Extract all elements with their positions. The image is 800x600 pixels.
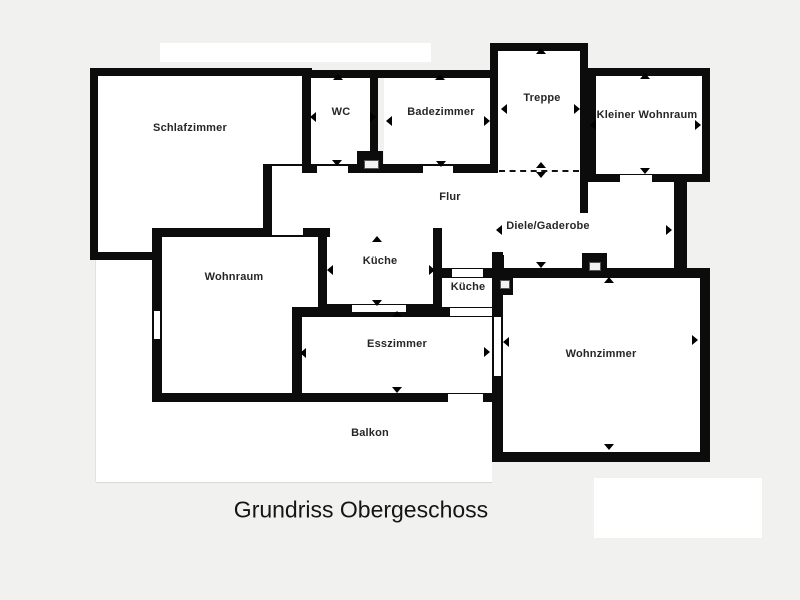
marker-diele-right	[666, 225, 672, 235]
marker-kleiner-wohnraum-up	[640, 73, 650, 79]
marker-wohnzimmer-up	[604, 277, 614, 283]
marker-treppe-up	[536, 48, 546, 54]
window-esszimmer-wohnzimmer	[493, 316, 502, 377]
marker-esszimmer-left	[300, 348, 306, 358]
marker-kueche-right	[429, 265, 435, 275]
room-label-treppe: Treppe	[523, 92, 560, 104]
room-label-kueche-gross: Küche	[363, 255, 398, 267]
room-label-kueche-klein: Küche	[451, 281, 486, 293]
floor-badezimmer	[384, 76, 492, 168]
marker-stair-line-up	[536, 162, 546, 168]
room-label-flur: Flur	[439, 191, 461, 203]
marker-treppe-left	[501, 104, 507, 114]
marker-kleiner-wohnraum-left	[590, 120, 596, 130]
marker-badezimmer-right	[484, 116, 490, 126]
door-opening-flur-schlafzimmer	[272, 166, 302, 173]
marker-badezimmer-up	[435, 74, 445, 80]
marker-wc-up	[333, 74, 343, 80]
wall-wohnraum-bottom	[152, 393, 308, 402]
wall-kueche-left	[318, 228, 327, 312]
window-wohnraum-left	[153, 310, 161, 340]
floor-plan-canvas: Schlafzimmer WC Badezimmer Treppe Kleine…	[0, 0, 800, 600]
wall-schlafzimmer-top	[90, 68, 312, 76]
marker-kueche-down	[372, 300, 382, 306]
marker-kueche-up	[372, 236, 382, 242]
opening-kueche-klein-esszimmer	[450, 308, 492, 316]
door-opening-flur-wc	[317, 166, 348, 173]
room-label-schlafzimmer: Schlafzimmer	[153, 122, 227, 134]
wall-wohnzimmer-bottom	[493, 452, 710, 462]
door-opening-flur-wohnraum	[272, 228, 303, 235]
window-kleiner-wohnraum-bottom	[620, 175, 652, 182]
whiteout-band-top	[160, 43, 431, 62]
plan-title: Grundriss Obergeschoss	[234, 497, 488, 524]
marker-kueche-left	[327, 265, 333, 275]
floor-kleiner-wohnraum	[594, 74, 704, 176]
wall-schlafzimmer-left	[90, 68, 98, 260]
marker-wc-down	[332, 160, 342, 166]
wall-wc-badezimmer-top	[302, 70, 498, 78]
room-label-kleiner-wohnraum: Kleiner Wohnraum	[597, 109, 698, 121]
room-label-diele: Diele/Gaderobe	[506, 220, 590, 232]
marker-wohnzimmer-left	[503, 337, 509, 347]
whiteout-rect-bottom-right	[594, 478, 762, 538]
wall-flur-left	[263, 164, 272, 230]
wall-diele-right	[674, 178, 687, 278]
marker-wohnzimmer-right	[692, 335, 698, 345]
window-kueche-klein-top	[452, 269, 483, 277]
wall-schlafzimmer-bottom	[90, 252, 158, 260]
marker-kleiner-wohnraum-down	[640, 168, 650, 174]
marker-kleiner-wohnraum-right	[695, 120, 701, 130]
marker-esszimmer-up	[392, 311, 402, 317]
door-symbol-wc-inner	[364, 160, 379, 169]
room-label-balkon: Balkon	[351, 427, 389, 439]
marker-esszimmer-right	[484, 347, 490, 357]
floor-wohnzimmer	[503, 277, 700, 452]
window-esszimmer-bottom	[448, 394, 483, 402]
room-label-badezimmer: Badezimmer	[407, 106, 474, 118]
door-symbol-wohnzimmer-inner	[500, 280, 510, 289]
room-label-wc: WC	[332, 106, 351, 118]
room-label-wohnraum: Wohnraum	[205, 271, 264, 283]
marker-diele-down	[536, 262, 546, 268]
room-label-wohnzimmer: Wohnzimmer	[566, 348, 637, 360]
marker-stair-line-down	[536, 172, 546, 178]
wall-treppe-left	[490, 43, 498, 171]
wall-wohnzimmer-right	[700, 268, 710, 462]
wall-wohnraum-top	[152, 228, 330, 237]
door-symbol-diele-inner	[589, 262, 601, 271]
marker-esszimmer-down	[392, 387, 402, 393]
wall-kleiner-wohnraum-right	[702, 68, 710, 182]
door-opening-flur-badezimmer	[423, 166, 453, 173]
room-label-esszimmer: Esszimmer	[367, 338, 427, 350]
marker-wc-left	[310, 112, 316, 122]
marker-badezimmer-down	[436, 161, 446, 167]
marker-wc-right	[370, 112, 376, 122]
marker-treppe-right	[574, 104, 580, 114]
marker-wohnzimmer-down	[604, 444, 614, 450]
marker-diele-left	[496, 225, 502, 235]
marker-badezimmer-left	[386, 116, 392, 126]
